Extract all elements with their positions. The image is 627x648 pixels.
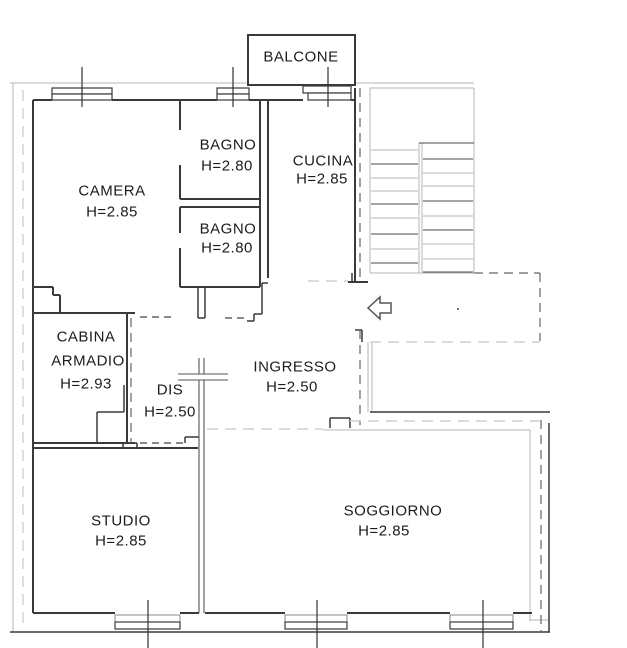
windows-bottom-outer bbox=[115, 615, 513, 622]
room-label-dis: DIS bbox=[157, 382, 184, 399]
entrance-arrow-icon bbox=[368, 297, 391, 319]
room-height-soggiorno: H=2.85 bbox=[358, 523, 410, 540]
room-label-bagno-2: BAGNO bbox=[200, 221, 257, 238]
windows-bottom-inner bbox=[115, 622, 513, 629]
room-height-cucina: H=2.85 bbox=[296, 171, 348, 188]
room-height-cabina-armadio: H=2.93 bbox=[60, 376, 112, 393]
room-label-studio: STUDIO bbox=[91, 513, 151, 530]
window-center-ticks bbox=[82, 67, 483, 648]
room-label-cabina-armadio-line2: ARMADIO bbox=[51, 353, 125, 370]
room-label-soggiorno: SOGGIORNO bbox=[344, 503, 443, 520]
room-label-cucina: CUCINA bbox=[293, 153, 354, 170]
room-label-camera: CAMERA bbox=[78, 183, 145, 200]
reference-dot bbox=[457, 308, 459, 310]
partition-wall bbox=[178, 358, 228, 613]
windows-top bbox=[52, 86, 351, 100]
room-height-camera: H=2.85 bbox=[86, 204, 138, 221]
room-label-cabina-armadio-line1: CABINA bbox=[57, 329, 116, 346]
room-label-bagno-1: BAGNO bbox=[200, 137, 257, 154]
room-height-bagno-1: H=2.80 bbox=[201, 158, 253, 175]
room-height-studio: H=2.85 bbox=[95, 533, 147, 550]
room-height-ingresso: H=2.50 bbox=[266, 379, 318, 396]
floor-plan-linework bbox=[0, 0, 627, 648]
secondary-walls bbox=[10, 273, 550, 632]
room-height-dis: H=2.50 bbox=[144, 404, 196, 421]
room-label-balcone: BALCONE bbox=[263, 49, 338, 66]
room-label-ingresso: INGRESSO bbox=[253, 359, 336, 376]
floor-plan: BALCONE CAMERA H=2.85 BAGNO H=2.80 CUCIN… bbox=[0, 0, 627, 648]
room-height-bagno-2: H=2.80 bbox=[201, 240, 253, 257]
